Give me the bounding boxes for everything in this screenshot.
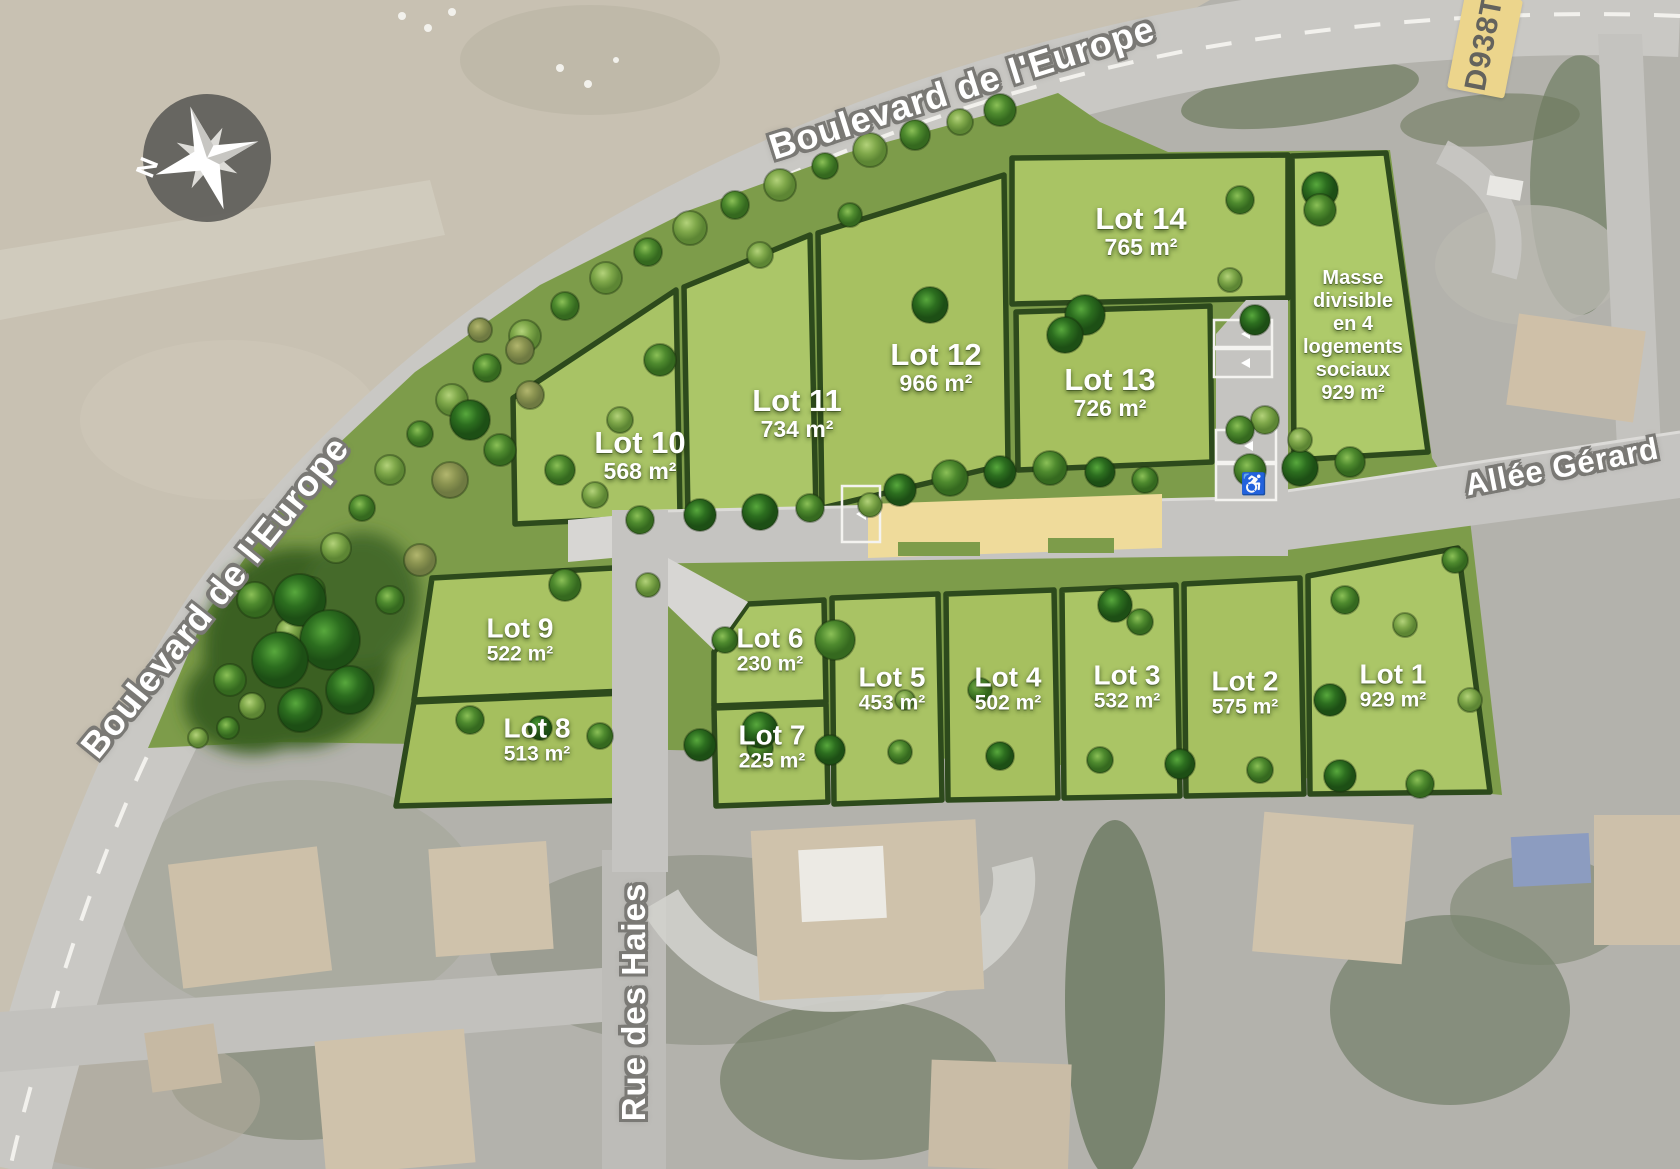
- tree-icon: [1087, 747, 1113, 773]
- tree-icon: [1226, 186, 1254, 214]
- tree-icon: [838, 203, 862, 227]
- tree-icon: [947, 109, 973, 135]
- lot-14-parcel: [1012, 155, 1288, 304]
- tree-icon: [506, 336, 534, 364]
- tree-icon: [742, 712, 778, 748]
- tree-icon: [1282, 450, 1318, 486]
- tree-icon: [853, 133, 887, 167]
- tree-icon: [375, 455, 405, 485]
- hedge-patch: [898, 542, 980, 556]
- tree-icon: [634, 238, 662, 266]
- tree-icon: [932, 460, 968, 496]
- tree-icon: [1406, 770, 1434, 798]
- tree-icon: [1165, 749, 1195, 779]
- tree-icon: [984, 94, 1016, 126]
- tree-icon: [214, 664, 246, 696]
- tree-icon: [473, 354, 501, 382]
- internal-road-south: [612, 510, 668, 872]
- tree-icon: [1324, 760, 1356, 792]
- tree-icon: [1331, 586, 1359, 614]
- tree-icon: [1127, 609, 1153, 635]
- tree-icon: [1218, 268, 1242, 292]
- lot-13-parcel: [1016, 306, 1212, 470]
- rue-des-haies-road: [602, 850, 666, 1169]
- tree-icon: [326, 666, 374, 714]
- tree-icon: [188, 728, 208, 748]
- tree-icon: [1240, 305, 1270, 335]
- tree-icon: [858, 493, 882, 517]
- hedge-patch: [1048, 538, 1114, 553]
- tree-icon: [796, 494, 824, 522]
- tree-icon: [815, 620, 855, 660]
- tree-icon: [1085, 457, 1115, 487]
- field-patch: [460, 5, 720, 115]
- tree-icon: [1288, 428, 1312, 452]
- tree-icon: [1393, 613, 1417, 637]
- tree-icon: [986, 742, 1014, 770]
- tree-icon: [644, 344, 676, 376]
- tree-icon: [1251, 406, 1279, 434]
- tree-icon: [300, 610, 360, 670]
- tree-icon: [321, 533, 351, 563]
- tree-icon: [626, 506, 654, 534]
- tree-icon: [484, 434, 516, 466]
- tree-icon: [1033, 451, 1067, 485]
- tree-icon: [432, 462, 468, 498]
- tree-icon: [1247, 757, 1273, 783]
- tree-icon: [468, 318, 492, 342]
- tree-icon: [456, 706, 484, 734]
- tree-icon: [764, 169, 796, 201]
- tree-icon: [1132, 467, 1158, 493]
- tree-icon: [582, 482, 608, 508]
- tree-icon: [1314, 684, 1346, 716]
- tree-icon: [900, 120, 930, 150]
- tree-icon: [1335, 447, 1365, 477]
- aerial-base-svg: [0, 0, 1680, 1169]
- tree-icon: [912, 287, 948, 323]
- tree-icon: [1234, 454, 1266, 486]
- tree-icon: [237, 582, 273, 618]
- tree-icon: [349, 495, 375, 521]
- tree-icon: [742, 494, 778, 530]
- tree-icon: [684, 499, 716, 531]
- tree-icon: [607, 407, 633, 433]
- tree-icon: [376, 586, 404, 614]
- lot-11-parcel: [684, 235, 816, 516]
- tree-icon: [968, 678, 992, 702]
- tree-icon: [895, 690, 915, 710]
- tree-icon: [812, 153, 838, 179]
- tree-icon: [217, 717, 239, 739]
- tree-icon: [1047, 317, 1083, 353]
- tree-icon: [1226, 416, 1254, 444]
- lot-2-parcel: [1184, 578, 1304, 796]
- lot-8-parcel: [396, 692, 648, 806]
- tree-icon: [528, 716, 552, 740]
- tree-icon: [516, 381, 544, 409]
- tree-icon: [404, 544, 436, 576]
- tree-icon: [673, 211, 707, 245]
- tree-icon: [551, 292, 579, 320]
- tree-icon: [407, 421, 433, 447]
- tree-icon: [239, 693, 265, 719]
- site-plan-map: Boulevard de l'Europe Boulevard de l'Eur…: [0, 0, 1680, 1169]
- junction-flare: [568, 516, 612, 562]
- tree-icon: [1304, 194, 1336, 226]
- tree-icon: [721, 191, 749, 219]
- tree-icon: [984, 456, 1016, 488]
- tree-icon: [545, 455, 575, 485]
- tree-icon: [590, 262, 622, 294]
- tree-icon: [888, 740, 912, 764]
- tree-icon: [815, 735, 845, 765]
- tree-icon: [747, 242, 773, 268]
- tree-icon: [684, 729, 716, 761]
- tree-icon: [1442, 547, 1468, 573]
- tree-icon: [712, 627, 738, 653]
- tree-icon: [450, 400, 490, 440]
- tree-icon: [636, 573, 660, 597]
- tree-icon: [884, 474, 916, 506]
- tree-icon: [1098, 588, 1132, 622]
- tree-icon: [252, 632, 308, 688]
- tree-icon: [278, 688, 322, 732]
- lot-1-parcel: [1308, 548, 1490, 794]
- tree-icon: [549, 569, 581, 601]
- tree-icon: [587, 723, 613, 749]
- tree-icon: [1458, 688, 1482, 712]
